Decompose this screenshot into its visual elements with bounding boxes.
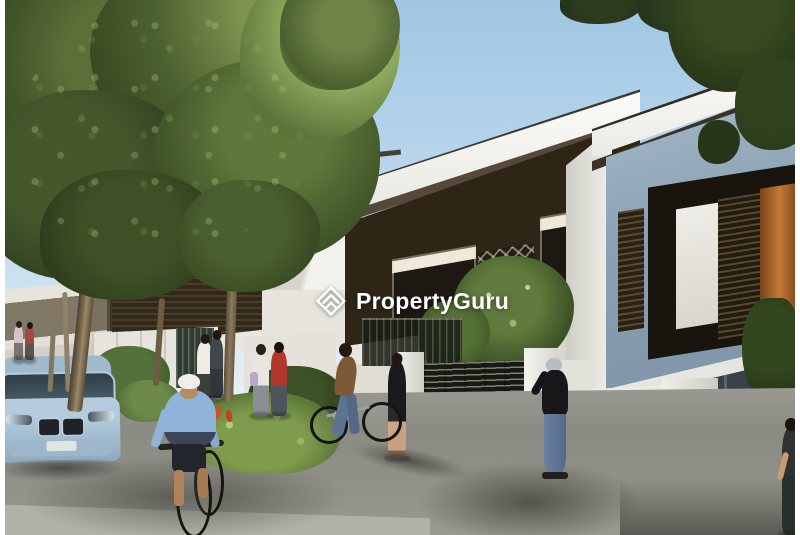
brand-name: PropertyGuru <box>356 290 509 313</box>
cyclist-woman <box>306 350 398 460</box>
man-at-pillar <box>534 358 576 492</box>
rider-leg-right <box>198 468 208 498</box>
property-listing-image: PropertyGuru <box>0 0 800 535</box>
person-far-left-b <box>25 327 34 360</box>
white-helmet <box>178 374 200 389</box>
car-headlight-left <box>6 414 32 425</box>
overhang-foliage-1 <box>560 0 644 24</box>
creeper-plants-window <box>742 298 798 402</box>
car-headlight-right <box>88 410 115 422</box>
house-a-window-white-panel <box>676 203 718 330</box>
propertyguru-logo-icon <box>315 285 347 317</box>
lavender-shoulder-bag <box>250 372 258 386</box>
car-under-shadow <box>1 459 121 481</box>
car-grille-right <box>62 418 84 436</box>
pedestrian-red-jacket <box>271 350 287 416</box>
rider-head <box>339 343 352 357</box>
car-grille-left <box>38 418 60 436</box>
left-frame-bar <box>0 0 5 535</box>
recess-white-column <box>566 128 612 396</box>
black-tshirt-torso <box>542 370 568 416</box>
brand-watermark: PropertyGuru <box>315 285 509 317</box>
rider-leg-left <box>174 470 184 506</box>
shoes <box>542 472 568 479</box>
jeans-legs <box>544 414 566 474</box>
right-frame-bar <box>795 0 800 535</box>
rider-leg-jeans-2 <box>346 394 360 435</box>
cyclist-front-view <box>148 380 243 535</box>
rider-torso-brown <box>333 355 358 397</box>
suv-car <box>0 355 121 485</box>
person-far-left-a <box>14 326 23 360</box>
house-a-side-louver <box>618 208 644 332</box>
shadow-bottom-right <box>620 478 800 535</box>
street-rendering-scene: PropertyGuru <box>0 0 800 535</box>
overhang-foliage-4 <box>735 58 800 150</box>
car-license-plate <box>46 441 76 452</box>
